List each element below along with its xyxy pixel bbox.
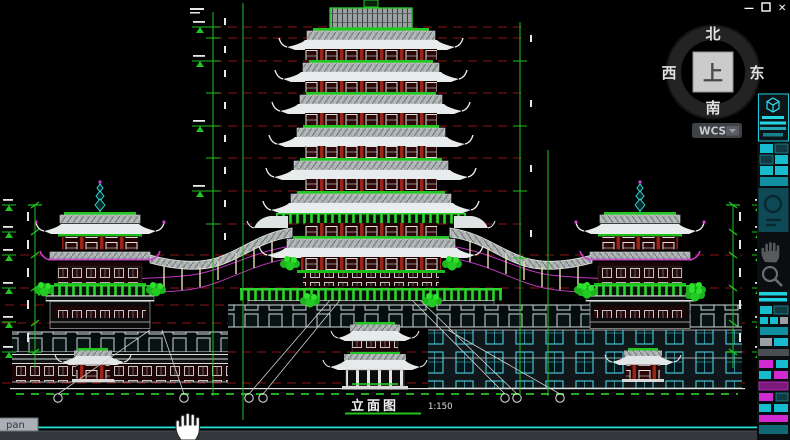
- viewcube-north-label[interactable]: 北: [705, 25, 720, 43]
- status-bar-edge: [0, 431, 790, 432]
- viewcube-top-label[interactable]: 上: [703, 61, 723, 85]
- palette-active-tool-tile[interactable]: [759, 188, 789, 232]
- close-button[interactable]: ✕: [778, 3, 786, 14]
- drawing-title: 立面图: [351, 398, 399, 414]
- viewcube-south-label[interactable]: 南: [705, 99, 720, 117]
- wcs-dropdown[interactable]: WCS: [692, 123, 742, 138]
- status-bar: [0, 431, 790, 440]
- cad-application-window: 立面图 1:150 pan — ✕ 上 北 南 西 东 WCS: [0, 0, 790, 440]
- pan-tooltip: pan: [0, 418, 38, 431]
- palette-header: [759, 94, 789, 141]
- minimize-button[interactable]: —: [744, 3, 754, 14]
- pan-tooltip-label: pan: [6, 420, 25, 431]
- wcs-label[interactable]: WCS: [699, 126, 726, 138]
- right-tool-palette[interactable]: [757, 93, 790, 440]
- viewcube-east-label[interactable]: 东: [749, 64, 764, 82]
- drawing-scale: 1:150: [428, 402, 453, 412]
- viewcube-west-label[interactable]: 西: [661, 64, 676, 82]
- cyan-dimension-line: [0, 427, 757, 429]
